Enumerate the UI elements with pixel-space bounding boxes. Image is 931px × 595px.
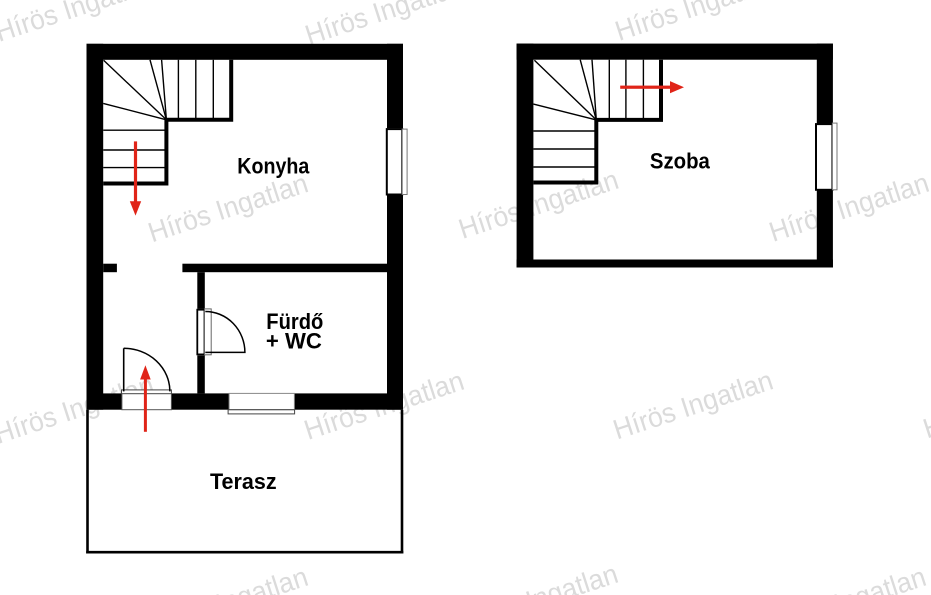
svg-text:Hírös Ingatlan: Hírös Ingatlan <box>609 365 776 446</box>
svg-text:Hírös Ingatlan: Hírös Ingatlan <box>144 167 311 248</box>
svg-text:Hírös Ingatlan: Hírös Ingatlan <box>611 0 778 47</box>
svg-text:Konyha: Konyha <box>237 154 309 179</box>
svg-text:Terasz: Terasz <box>210 469 277 494</box>
svg-text:Szoba: Szoba <box>650 148 711 173</box>
svg-text:Hírös Ingatlan: Hírös Ingatlan <box>0 0 159 48</box>
svg-text:Hírös Ingatlan: Hírös Ingatlan <box>144 561 311 595</box>
svg-text:Hírös Ingatlan: Hírös Ingatlan <box>765 167 931 248</box>
svg-text:+ WC: + WC <box>266 329 322 354</box>
svg-text:Hírös Ingatlan: Hírös Ingatlan <box>762 561 929 595</box>
svg-text:Hírös Ingatlan: Hírös Ingatlan <box>454 558 621 595</box>
svg-text:Hírös Ingatlan: Hírös Ingatlan <box>919 364 931 445</box>
svg-text:Hírös Ingatlan: Hírös Ingatlan <box>301 0 468 51</box>
